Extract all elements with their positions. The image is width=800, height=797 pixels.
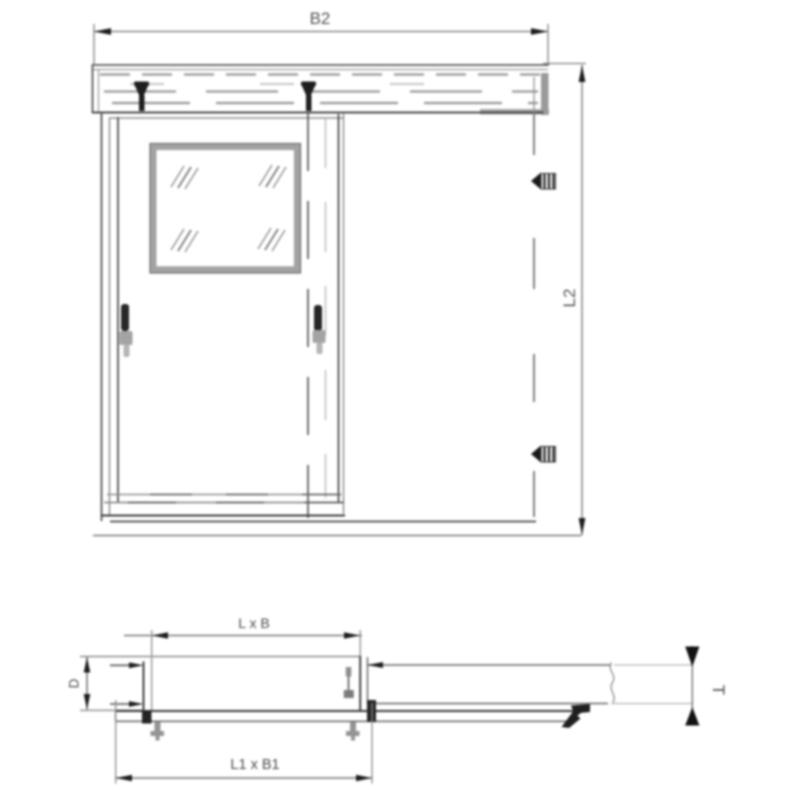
svg-text:D: D [67,678,82,688]
svg-text:T: T [709,685,728,695]
svg-text:L2: L2 [560,289,579,308]
svg-text:L1 x B1: L1 x B1 [230,757,279,773]
svg-text:L x B: L x B [238,615,269,631]
svg-text:B2: B2 [310,9,331,28]
